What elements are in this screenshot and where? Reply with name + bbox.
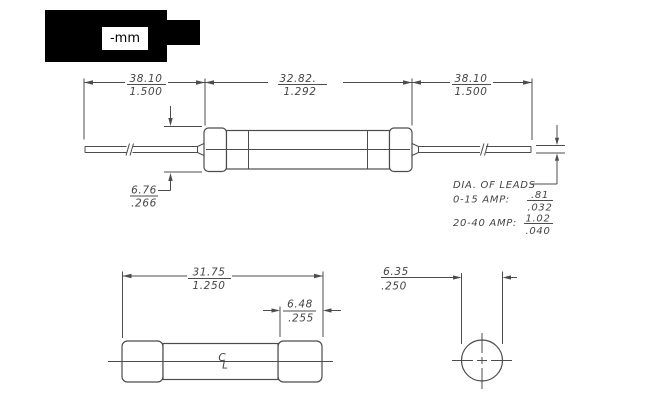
dim-dia-inch: .250 [381, 281, 407, 293]
lead-left-break [126, 144, 134, 156]
fuse-dimension-drawing: 38.10 1.500 32.82. 1.292 38.10 1.500 [0, 0, 646, 413]
dim-cap-dia-mm: 6.76 [131, 185, 157, 197]
arrowhead [314, 274, 323, 278]
arrowhead [453, 275, 462, 279]
arrowhead [196, 80, 205, 84]
arrowhead [403, 80, 412, 84]
arrowhead [412, 80, 421, 84]
lead-right-seg1 [419, 147, 481, 153]
fuse-top-view [85, 128, 531, 172]
leads-note-row1-label: 0-15 AMP: [453, 195, 510, 206]
leads-note-row2-mm: 1.02 [525, 214, 550, 225]
leader-line [158, 181, 171, 191]
dim-dia-mm: 6.35 [383, 266, 409, 278]
dim-lead-right-mm: 38.10 [454, 73, 487, 85]
fuse-side-view: C L [108, 341, 333, 382]
unit-label: -mm [110, 31, 140, 46]
arrowhead [272, 308, 281, 312]
dim-body-inch: 1.292 [283, 86, 316, 98]
up-arrowhead [168, 173, 172, 181]
dim-cap-mm: 6.48 [287, 299, 313, 311]
down-arrowhead [555, 138, 559, 145]
dim-body-mm: 32.82. [280, 73, 317, 85]
arrowhead [523, 80, 532, 84]
lead-diameter-callout: DIA. OF LEADS 0-15 AMP: .81 .032 20-40 A… [453, 125, 565, 237]
arrowhead [205, 80, 214, 84]
arrowhead [123, 274, 132, 278]
arrowhead [84, 80, 93, 84]
lead-right-taper [412, 144, 419, 156]
dim-cap-inch: .255 [288, 313, 314, 325]
dim-cap-diameter: 6.76 .266 [130, 106, 202, 210]
arrowhead [503, 275, 512, 279]
redaction-block-side [167, 20, 200, 45]
leads-note-title: DIA. OF LEADS [453, 180, 536, 191]
arrowhead [323, 308, 332, 312]
lead-left-seg1 [85, 147, 127, 153]
leads-note-row2-label: 20-40 AMP: [453, 218, 517, 229]
dim-cap-width: 6.48 .255 [263, 299, 341, 338]
dim-diameter: 6.35 .250 [381, 266, 517, 344]
down-arrowhead [168, 118, 172, 126]
lead-right-seg2 [486, 147, 531, 153]
dim-lead-left-inch: 1.500 [129, 86, 162, 98]
up-arrowhead [555, 154, 559, 161]
dim-length-mm: 31.75 [192, 267, 225, 279]
top-view: 38.10 1.500 32.82. 1.292 38.10 1.500 [84, 73, 565, 237]
leads-note-row2-inch: .040 [525, 226, 550, 237]
unit-label-box[interactable]: -mm [102, 27, 148, 50]
leads-note-row1-mm: .81 [531, 190, 549, 201]
dim-lead-left-mm: 38.10 [129, 73, 162, 85]
side-view: 31.75 1.250 6.48 .255 C L [108, 267, 341, 383]
dim-length-inch: 1.250 [192, 280, 225, 292]
centerline-symbol-l: L [222, 360, 228, 372]
dim-cap-dia-inch: .266 [131, 198, 157, 210]
leads-note-row1-inch: .032 [527, 203, 552, 214]
lead-right-break [481, 144, 489, 156]
end-view: 6.35 .250 [381, 266, 517, 389]
dim-lead-right-inch: 1.500 [454, 86, 487, 98]
lead-dia-ext-lines [536, 146, 565, 154]
lead-left-seg2 [133, 147, 198, 153]
lead-left-taper [198, 144, 205, 156]
